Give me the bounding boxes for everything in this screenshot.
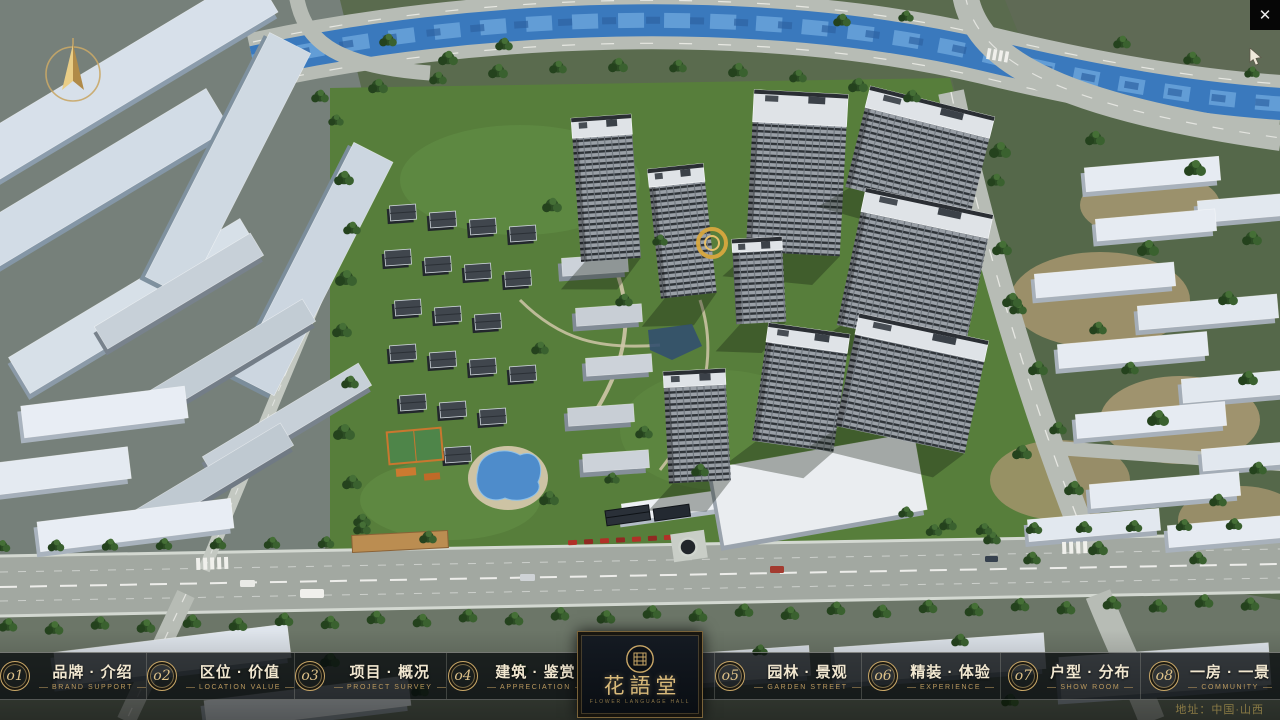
nav-label-en: APPRECIATION [487,684,584,691]
nav-label-zh: 项目 · 概况 [350,661,430,682]
nav-label-en: GARDEN STREET [754,684,860,691]
mouse-cursor [1249,48,1264,68]
close-icon: ✕ [1259,8,1272,23]
nav-label-en: EXPERIENCE [907,684,994,691]
nav-item-floorplan-distribution[interactable]: o7 户型 · 分布 SHOW ROOM [1000,653,1140,699]
sales-presentation-screen: ✕ o1 品牌 · 介绍 BRAND SUPPORT o2 区位 · 价值 LO… [0,0,1280,720]
nav-number-badge: o2 [147,661,177,691]
nav-item-interior-experience[interactable]: o6 精装 · 体验 EXPERIENCE [861,653,1001,699]
nav-number-badge: o4 [448,661,478,691]
seal-icon [625,644,655,674]
nav-label-en: PROJECT SURVEY [334,684,446,691]
address-text: 地址：中国·山西 [1175,701,1264,717]
nav-item-room-scenery[interactable]: o8 一房 · 一景 COMMUNITY [1140,653,1280,699]
logo-subtitle: FLOWER LANGUAGE HALL [590,699,690,705]
nav-number-badge: o3 [295,661,325,691]
nav-number-badge: o1 [0,661,30,691]
nav-label-zh: 建筑 · 鉴赏 [495,661,575,682]
close-button[interactable]: ✕ [1250,0,1280,30]
nav-label-zh: 户型 · 分布 [1050,661,1130,682]
nav-label-zh: 精装 · 体验 [910,661,990,682]
nav-label-zh: 园林 · 景观 [767,661,847,682]
nav-item-architecture-appreciation[interactable]: o4 建筑 · 鉴赏 APPRECIATION [446,653,586,699]
nav-label-en: BRAND SUPPORT [39,684,146,691]
nav-label-en: LOCATION VALUE [186,684,294,691]
nav-number-badge: o5 [715,661,745,691]
nav-label-en: COMMUNITY [1188,684,1272,691]
nav-number-badge: o7 [1008,661,1038,691]
nav-label-zh: 一房 · 一景 [1190,661,1270,682]
nav-label-en: SHOW ROOM [1047,684,1133,691]
nav-item-location-value[interactable]: o2 区位 · 价值 LOCATION VALUE [146,653,294,699]
logo-title: 花語堂 [604,676,682,697]
masterplan-aerial-view[interactable] [0,0,1280,720]
nav-item-project-overview[interactable]: o3 项目 · 概况 PROJECT SURVEY [294,653,446,699]
nav-label-zh: 区位 · 价值 [200,661,280,682]
nav-number-badge: o8 [1149,661,1179,691]
nav-number-badge: o6 [868,661,898,691]
nav-label-zh: 品牌 · 介绍 [52,661,132,682]
logo-panel[interactable]: 花語堂 FLOWER LANGUAGE HALL [577,631,703,718]
nav-item-garden-landscape[interactable]: o5 园林 · 景观 GARDEN STREET [714,653,860,699]
nav-item-brand-intro[interactable]: o1 品牌 · 介绍 BRAND SUPPORT [0,653,146,699]
